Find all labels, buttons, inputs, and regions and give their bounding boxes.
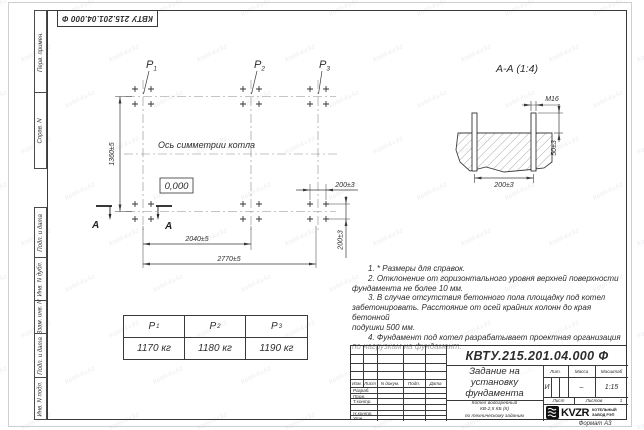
notes-block: 1. * Размеры для справок. 2. Отклонение … [352,264,628,352]
loads-header-p3: P3 [246,316,307,338]
section-title: А-А (1:4) [495,63,538,75]
watermark-text: kotel-kv.kz [636,227,644,248]
note-line: 4. Фундамент под котел разрабатывает про… [352,333,628,343]
tb-doc-number: КВТУ.215.201.04.000 Ф [446,346,628,365]
tb-title: Задание на установку фундамента [446,365,543,400]
loads-header-p2: P2 [185,316,246,338]
loads-value-p2: 1180 кг [185,338,246,359]
watermark-text: kotel-kv.kz [636,135,644,156]
svg-text:200±3: 200±3 [338,230,345,251]
dim-200-section: 200±3 [475,174,534,189]
anchor-bolt-left [472,113,477,171]
kvzr-logo-icon [546,406,559,419]
tb-col-ndocum: N докум. [377,379,403,387]
point-leaders [144,71,323,94]
margin-cell-sprav-n: Справ. N [34,92,47,169]
symmetry-axis-label: Ось симметрии котла [158,140,255,150]
tb-scale-label: Масштаб [595,365,628,377]
margin-cell-podp-data-1: Подп. и дата [34,207,47,258]
tb-row-prov: Пров. [353,394,365,399]
margin-cell-inv-dubl: Инв. N дубл. [34,257,47,301]
margin-cell-podp-data-2: Подп. и дата [34,333,47,378]
loads-header-p1: P1 [124,316,185,338]
tb-sheets-value: 1 [614,397,628,404]
svg-text:0,000: 0,000 [165,181,189,192]
kvzr-logo: KVZR КОТЕЛЬНЫЙ ЗАВОД РЭП [546,405,626,420]
watermark-text: kotel-kv.kz [636,319,644,340]
tb-mass-label: Масса [568,365,595,377]
dim-2040-2770: 2040±5 2770±5 [143,226,316,268]
svg-text:2770±5: 2770±5 [216,256,240,263]
section-cut-marks [96,206,172,220]
watermark-text: kotel-kv.kz [636,43,644,64]
plan-axes [124,80,338,230]
loads-value-p3: 1190 кг [246,338,307,359]
tb-col-list: Лист [363,379,377,387]
note-line: 2. Отклонение от горизонтального уровня … [352,274,628,284]
svg-text:М16: М16 [545,96,559,103]
tb-row-razrab: Разраб. [353,388,370,393]
svg-text:50±3: 50±3 [551,140,558,156]
tb-col-data: Дата [425,379,446,387]
tb-lit-label: Лит. [543,365,568,377]
tb-mass-value: – [568,377,595,397]
note-line: подушки 500 мм. [352,323,628,333]
section-foundation-block [456,113,552,172]
section-letter-a2: A [164,221,172,232]
tb-row-utv: Утв. [353,416,363,421]
note-line: забетонировать. Расстояние от осей крайн… [352,303,628,323]
format-label: Формат А3 [545,421,644,427]
level-mark: 0,000 [160,178,193,193]
tb-lit-value: И [543,377,551,397]
tb-sheet-label: Лист [543,397,574,404]
note-line: фундамента не более 10 мм. [352,284,628,294]
drawing-sheet: kotel-kv.kzkotel-kv.kzkotel-kv.kzkotel-k… [0,0,644,430]
margin-cell-vzam-inv: Взам. инв. N [34,300,47,334]
note-line: 1. * Размеры для справок. [352,264,628,274]
svg-text:200±3: 200±3 [334,182,355,189]
anchor-bolt-right [531,113,536,171]
tb-scale-value: 1:15 [595,377,628,397]
margin-cell-inv-podl: Инв. N подл. [34,377,47,420]
svg-text:1360±5: 1360±5 [109,142,116,165]
tb-col-podp: Подп. [403,379,425,387]
svg-text:2040±5: 2040±5 [184,236,208,243]
point-label-p1: P1 [146,59,157,73]
kvzr-logo-text: KVZR [561,407,589,419]
svg-text:200±3: 200±3 [493,182,514,189]
title-block: Изм. Лист N докум. Подп. Дата Разраб. Пр… [350,345,627,420]
section-letter-a1: A [91,220,99,231]
dim-bolt-pitch: 200±3 200±3 [296,182,358,258]
point-label-p2: P2 [254,59,265,73]
margin-cell-perv-primen: Перв. примен. [34,10,47,93]
tb-subtitle: Котел водогрейный КВ-2,5 КБ (К) по техни… [446,400,543,421]
loads-table: P1 P2 P3 1170 кг 1180 кг 1190 кг [123,315,308,360]
tb-sheets-label: Листов [574,397,614,404]
point-label-p3: P3 [319,59,330,73]
dim-m16: М16 [522,96,560,111]
tb-row-tkontr: Т.контр. [353,399,372,404]
kvzr-logo-caption: КОТЕЛЬНЫЙ ЗАВОД РЭП [592,408,617,417]
loads-value-p1: 1170 кг [124,338,185,359]
tb-row-nkontr: Н.контр. [353,411,372,416]
tb-col-izm: Изм. [351,379,363,387]
note-line: 3. В случае отсутствия бетонного пола пл… [352,293,628,303]
